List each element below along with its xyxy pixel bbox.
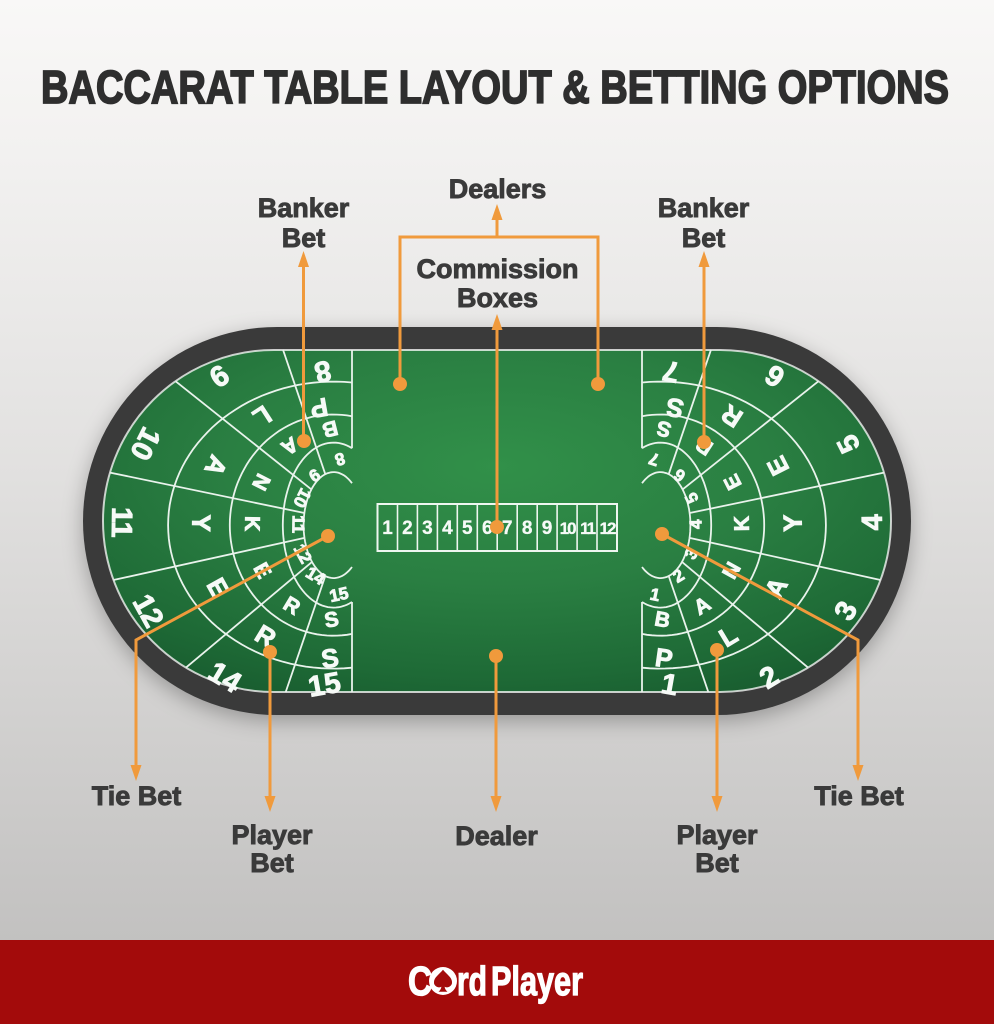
svg-text:K: K: [731, 516, 754, 532]
svg-text:Dealer: Dealer: [455, 821, 538, 851]
svg-text:Tie Bet: Tie Bet: [92, 781, 182, 811]
svg-text:Banker: Banker: [658, 193, 750, 223]
svg-text:11: 11: [580, 519, 596, 538]
svg-text:10: 10: [560, 519, 576, 538]
svg-text:1: 1: [382, 518, 393, 539]
svg-text:11: 11: [288, 515, 307, 533]
svg-text:Player: Player: [231, 820, 313, 850]
svg-text:12: 12: [600, 519, 616, 538]
svg-text:Player: Player: [676, 820, 758, 850]
svg-text:Bet: Bet: [695, 848, 739, 878]
svg-text:Y: Y: [777, 514, 807, 532]
svg-text:5: 5: [462, 518, 473, 539]
svg-text:11: 11: [105, 507, 138, 538]
svg-text:Player: Player: [491, 958, 583, 1004]
svg-text:15: 15: [328, 584, 350, 607]
svg-text:Tie Bet: Tie Bet: [814, 781, 904, 811]
svg-text:Boxes: Boxes: [457, 283, 538, 313]
svg-text:4: 4: [442, 518, 453, 539]
svg-text:Bet: Bet: [282, 223, 326, 253]
svg-text:4: 4: [857, 514, 889, 531]
svg-text:Banker: Banker: [258, 193, 350, 223]
svg-text:4: 4: [686, 519, 705, 529]
svg-text:2: 2: [402, 518, 413, 539]
svg-text:rd: rd: [457, 958, 487, 1004]
svg-text:Bet: Bet: [250, 848, 294, 878]
svg-text:Y: Y: [186, 514, 216, 532]
svg-text:Dealers: Dealers: [449, 174, 547, 204]
svg-text:Commission: Commission: [416, 254, 578, 284]
svg-text:3: 3: [422, 518, 433, 539]
svg-text:K: K: [240, 516, 263, 532]
svg-text:8: 8: [522, 518, 533, 539]
svg-text:C: C: [408, 958, 432, 1004]
svg-text:Bet: Bet: [682, 223, 726, 253]
svg-text:BACCARAT TABLE LAYOUT & BETTIN: BACCARAT TABLE LAYOUT & BETTING OPTIONS: [41, 61, 949, 113]
svg-text:9: 9: [542, 518, 553, 539]
